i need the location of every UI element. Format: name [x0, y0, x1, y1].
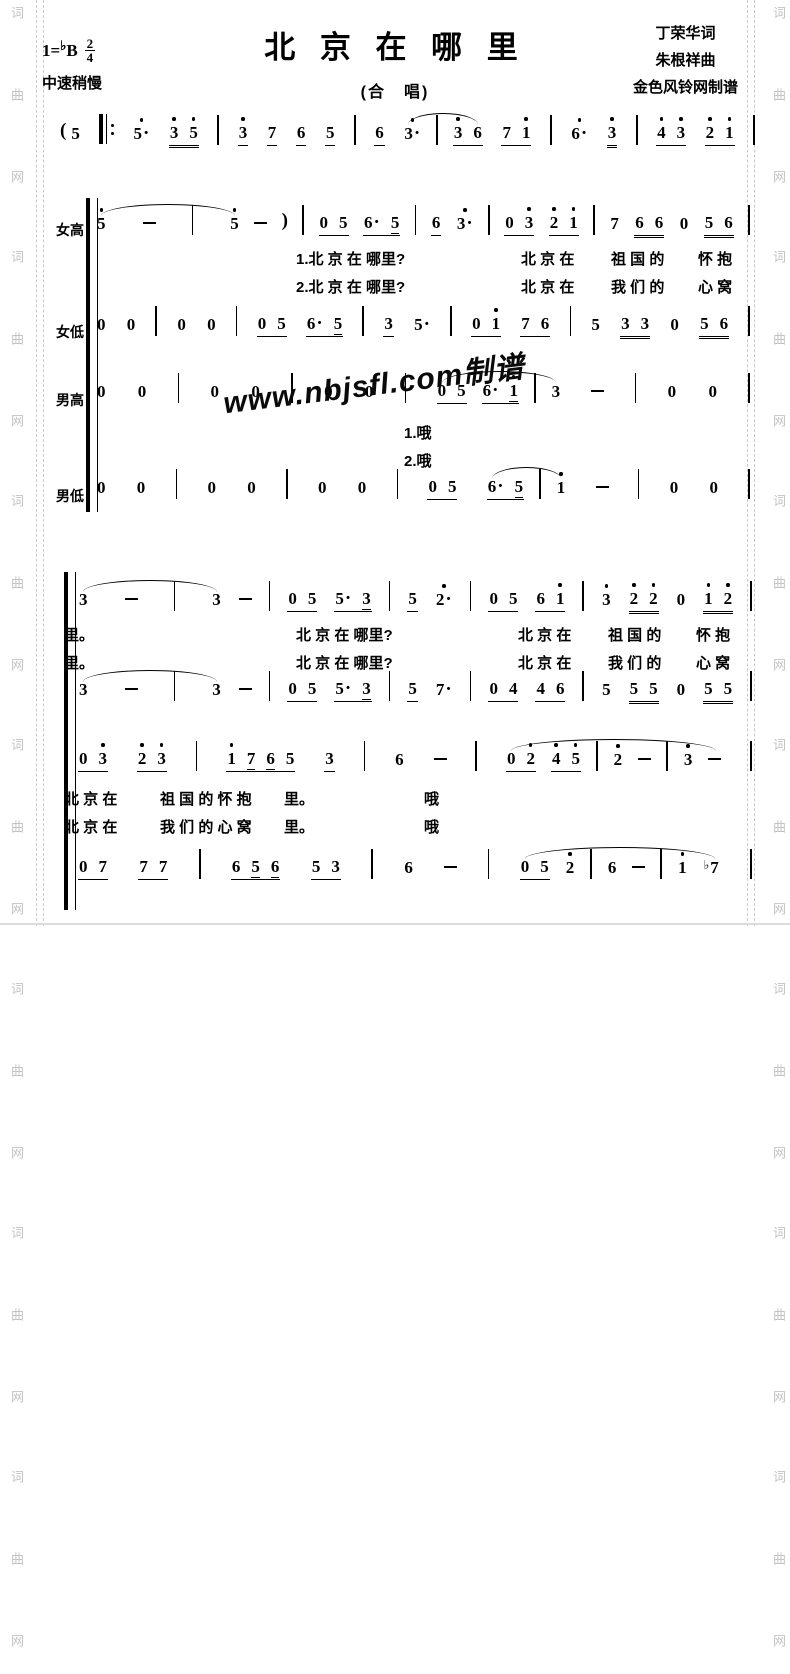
jianpu-note: 5	[539, 848, 550, 879]
jianpu-note: 5	[311, 848, 322, 879]
jianpu-note: 0	[520, 848, 531, 879]
jianpu-note: 3	[78, 581, 89, 612]
barline	[269, 671, 271, 701]
lyric-segment: 我 们 的 心 窝	[160, 816, 252, 837]
barline	[436, 115, 438, 145]
lyric-segment: 2.哦	[404, 450, 432, 471]
jianpu-note: 0	[96, 373, 107, 404]
jianpu-note: 6	[723, 204, 734, 235]
barline	[178, 373, 180, 403]
lyric-row-tenor-verse2: 2.哦	[0, 450, 790, 472]
jianpu-note: 3	[640, 305, 651, 336]
jianpu-note: 6	[270, 848, 281, 879]
barline	[217, 115, 219, 145]
token-group: (5	[60, 115, 81, 146]
beam-group: 1765	[226, 740, 295, 772]
octave-dot	[616, 744, 620, 748]
barline	[666, 741, 668, 771]
lyric-segment: 北 京 在	[518, 652, 571, 673]
barline	[590, 849, 592, 879]
lyric-segment: 北 京 在	[64, 816, 117, 837]
music-line-tenor-2: 0323176536024523	[78, 726, 752, 772]
diagonal-watermark: www.nbjsfl.com制谱	[220, 342, 526, 423]
jianpu-note: 6·	[487, 468, 505, 499]
barline	[582, 581, 584, 611]
octave-dot	[652, 583, 656, 587]
jianpu-note: 5	[285, 740, 296, 771]
jianpu-note: 0	[707, 373, 718, 404]
jianpu-note: 0	[357, 469, 368, 500]
lyric-row-verse1: 里。北 京 在 哪里?北 京 在祖 国 的怀 抱	[0, 624, 790, 646]
duration-dash	[125, 598, 138, 600]
barline	[106, 114, 108, 144]
jianpu-note: 6	[231, 848, 242, 879]
lyric-segment: 里。	[64, 652, 94, 673]
jianpu-note: 6	[403, 849, 414, 880]
octave-dot	[442, 584, 446, 588]
jianpu-note: 3	[156, 740, 167, 771]
duration-dash	[591, 390, 604, 392]
octave-dot	[411, 118, 415, 122]
repeat-sign	[99, 114, 113, 145]
barline	[450, 306, 452, 336]
jianpu-note: 0	[206, 306, 217, 337]
beam-group: 56	[699, 305, 729, 337]
lyric-segment: 里。	[64, 624, 94, 645]
barline	[750, 849, 752, 879]
jianpu-note: 3	[601, 581, 612, 612]
jianpu-note: 2	[565, 849, 576, 880]
beam-group: 3	[607, 114, 618, 146]
jianpu-note: 5·	[413, 306, 431, 337]
jianpu-note: 3	[524, 204, 535, 235]
jianpu-note: 5·	[132, 115, 150, 146]
jianpu-note: 1	[555, 580, 566, 611]
barline	[389, 581, 391, 611]
jianpu-note: 4	[508, 670, 519, 701]
augmentation-dot: ·	[373, 212, 379, 233]
barline	[174, 581, 176, 611]
lyric-segment: 我 们 的	[611, 276, 664, 297]
beam-group: 22	[629, 580, 659, 612]
jianpu-note: 1	[521, 114, 532, 145]
augmentation-dot: ·	[345, 678, 351, 699]
slur-group: 024523	[506, 740, 721, 772]
jianpu-note: 3	[211, 671, 222, 702]
beam-group: 6·5	[306, 305, 343, 337]
barline	[174, 671, 176, 701]
jianpu-note: 7	[138, 848, 149, 879]
beam-group: 5·3	[334, 580, 371, 612]
octave-dot	[160, 743, 164, 747]
beam-group: 05	[488, 580, 518, 612]
barline	[750, 581, 752, 611]
augmentation-dot: ·	[424, 314, 430, 335]
augmentation-dot: ·	[345, 588, 351, 609]
octave-dot	[140, 118, 144, 122]
jianpu-note: 2	[723, 580, 734, 611]
jianpu-note: 0	[504, 204, 515, 235]
jianpu-note: 1	[724, 114, 735, 145]
octave-dot	[172, 117, 176, 121]
jianpu-note: 0	[78, 848, 89, 879]
lyric-segment: 怀 抱	[698, 248, 732, 269]
beam-group: 21	[549, 204, 579, 236]
key-signature: 1=♭B 2 4	[42, 38, 95, 63]
parenthesis: (	[60, 120, 66, 146]
barline	[196, 741, 198, 771]
jianpu-note: 3	[453, 114, 464, 145]
octave-dot	[660, 117, 664, 121]
barline	[750, 741, 752, 771]
octave-dot	[529, 743, 533, 747]
jianpu-note: 1	[703, 580, 714, 611]
octave-dot	[233, 208, 237, 212]
meter-denominator: 4	[87, 51, 94, 63]
lyric-row-verse1: 1.北 京 在 哪里?北 京 在祖 国 的怀 抱	[0, 248, 790, 270]
octave-dot	[192, 117, 196, 121]
barline	[389, 671, 391, 701]
voice-label-alto: 女低	[56, 322, 84, 342]
jianpu-note: 2	[648, 580, 659, 611]
jianpu-note: 1	[568, 204, 579, 235]
beam-group: 77	[138, 848, 168, 880]
beam-group: 3	[383, 305, 394, 337]
lyric-row-verse2: 北 京 在我 们 的 心 窝里。哦	[0, 816, 790, 838]
octave-dot	[728, 117, 732, 121]
jianpu-note: 5	[514, 468, 525, 499]
lyric-row-verse1: 北 京 在祖 国 的 怀 抱里。哦	[0, 788, 790, 810]
jianpu-note: 3	[78, 671, 89, 702]
jianpu-note: 6	[555, 670, 566, 701]
jianpu-note: 6	[540, 305, 551, 336]
jianpu-note: 3	[324, 740, 335, 771]
jianpu-note: 6	[535, 580, 546, 611]
octave-dot	[568, 852, 572, 856]
beam-group: 05	[319, 204, 349, 236]
octave-dot	[681, 852, 685, 856]
flat-icon: ♭	[60, 38, 66, 54]
jianpu-note: 0	[246, 469, 257, 500]
barline	[534, 373, 536, 403]
jianpu-note: 3·	[403, 115, 421, 146]
beam-group: 07	[78, 848, 108, 880]
octave-dot	[610, 117, 614, 121]
lyric-segment: 北 京 在 哪里?	[296, 624, 393, 645]
music-line-soprano-2: 33055·352·0561322012	[78, 566, 752, 612]
lyric-segment: 心 窝	[698, 276, 732, 297]
music-line-intro: (55·35376563·36716·34321	[60, 100, 755, 146]
beam-group: 12	[703, 580, 733, 612]
barline	[748, 306, 750, 336]
key-prefix: 1=	[42, 41, 60, 61]
parenthesis: )	[282, 210, 288, 236]
jianpu-note: 5	[70, 115, 81, 146]
beam-group: 61	[535, 580, 565, 612]
barline	[550, 115, 552, 145]
octave-dot	[230, 743, 234, 747]
jianpu-note: 0	[506, 740, 517, 771]
barline	[362, 306, 364, 336]
time-signature: 2 4	[85, 38, 96, 63]
jianpu-note: 0	[488, 580, 499, 611]
page-bottom-edge	[0, 923, 790, 925]
jianpu-note: 5·	[334, 580, 352, 611]
barline	[748, 373, 750, 403]
lyric-row-tenor-verse1: 1.哦	[0, 422, 790, 444]
jianpu-note: 7	[98, 848, 109, 879]
jianpu-note: 5	[338, 204, 349, 235]
barline	[488, 849, 490, 879]
voice-label-tenor: 男高	[56, 390, 84, 410]
jianpu-note: 0	[679, 205, 690, 236]
lyric-segment: 北 京 在	[521, 276, 574, 297]
jianpu-note: 5	[601, 671, 612, 702]
jianpu-note: 0	[210, 373, 221, 404]
slur-group: 3·36	[403, 114, 483, 146]
lyric-segment: 北 京 在	[518, 624, 571, 645]
jianpu-note: 3	[361, 670, 372, 701]
jianpu-note: 7	[267, 114, 278, 145]
jianpu-note: 3	[238, 114, 249, 145]
jianpu-note: 1	[556, 469, 567, 500]
jianpu-note: 0	[709, 469, 720, 500]
lyric-segment: 北 京 在	[521, 248, 574, 269]
lyric-segment: 祖 国 的	[608, 624, 661, 645]
lyric-row-verse2: 里。北 京 在 哪里?北 京 在我 们 的心 窝	[0, 652, 790, 674]
beam-group: 05	[427, 468, 457, 500]
jianpu-note: 0	[136, 469, 147, 500]
jianpu-note: 0	[257, 305, 268, 336]
beam-group: 71	[501, 114, 531, 146]
jianpu-note: 3	[98, 740, 109, 771]
beam-group: 55	[703, 670, 733, 702]
jianpu-note: 5	[407, 670, 418, 701]
beam-group: 04	[488, 670, 518, 702]
lyric-segment: 祖 国 的 怀 抱	[160, 788, 252, 809]
jianpu-note: 6	[394, 741, 405, 772]
jianpu-note: 0	[126, 306, 137, 337]
octave-dot	[605, 584, 609, 588]
octave-dot	[494, 308, 498, 312]
duration-dash	[125, 688, 138, 690]
slur-group: 05261♭7	[520, 848, 720, 880]
duration-dash	[444, 866, 457, 868]
jianpu-note: 5	[704, 204, 715, 235]
jianpu-note: 5	[508, 580, 519, 611]
jianpu-note: 7	[520, 305, 531, 336]
lyric-segment: 北 京 在	[64, 788, 117, 809]
jianpu-note: 5	[229, 205, 240, 236]
lyric-segment: 里。	[284, 788, 314, 809]
barline	[750, 671, 752, 701]
duration-dash	[708, 758, 721, 760]
barline	[753, 115, 755, 145]
barline	[636, 115, 638, 145]
jianpu-note: 5	[407, 580, 418, 611]
barline	[302, 205, 304, 235]
octave-dot	[726, 583, 730, 587]
barline	[199, 849, 201, 879]
jianpu-note: 3·	[456, 205, 474, 236]
jianpu-note: 7	[158, 848, 169, 879]
jianpu-note: 0	[471, 305, 482, 336]
beam-group: 76	[520, 305, 550, 337]
jianpu-note: 6	[265, 740, 276, 771]
jianpu-note: 0	[317, 469, 328, 500]
barline	[354, 115, 356, 145]
slur-group: 33	[78, 671, 222, 702]
barline	[364, 741, 366, 771]
jianpu-note: 6	[634, 204, 645, 235]
octave-dot	[241, 117, 245, 121]
augmentation-dot: ·	[445, 589, 451, 610]
octave-dot	[101, 743, 105, 747]
jianpu-note: 3	[676, 114, 687, 145]
duration-dash	[239, 598, 252, 600]
jianpu-note: 1	[226, 740, 237, 771]
octave-dot	[456, 117, 460, 121]
duration-dash	[596, 486, 609, 488]
beam-group: 5	[407, 580, 418, 612]
beam-group: 5	[407, 670, 418, 702]
jianpu-note: 0	[206, 469, 217, 500]
octave-dot	[552, 207, 556, 211]
jianpu-note: 3	[211, 581, 222, 612]
beam-group: 36	[453, 114, 483, 146]
beam-group: 02	[506, 740, 536, 772]
jianpu-note: 0	[488, 670, 499, 701]
barline	[155, 306, 157, 336]
barline	[475, 741, 477, 771]
augmentation-dot: ·	[445, 679, 451, 700]
beam-group: 6·5	[363, 204, 400, 236]
octave-dot	[527, 207, 531, 211]
jianpu-note: 5	[447, 468, 458, 499]
jianpu-note: 5	[333, 305, 344, 336]
lyric-segment: 哦	[424, 816, 439, 837]
jianpu-note: 5	[648, 670, 659, 701]
jianpu-note: 2	[613, 741, 624, 772]
jianpu-note: 7·	[435, 671, 453, 702]
lyricist-credit: 丁荣华词	[633, 20, 738, 47]
beam-group: 5·3	[334, 670, 371, 702]
beam-group: 46	[535, 670, 565, 702]
barline	[236, 306, 238, 336]
beam-group: 45	[551, 740, 581, 772]
beam-group: 21	[705, 114, 735, 146]
jianpu-note: 7	[609, 205, 620, 236]
jianpu-note: 0	[96, 306, 107, 337]
octave-dot	[524, 117, 528, 121]
barline	[415, 205, 417, 235]
barline	[286, 469, 288, 499]
music-line-bass-2: 077765653605261♭7	[78, 834, 752, 880]
jianpu-note: 0	[427, 468, 438, 499]
barline	[99, 114, 103, 144]
jianpu-note: 3	[383, 305, 394, 336]
jianpu-note: 5	[390, 204, 401, 235]
barline	[660, 849, 662, 879]
jianpu-note: 0	[137, 373, 148, 404]
barline	[570, 306, 572, 336]
beam-group: 3	[324, 740, 335, 772]
beam-group: 33	[620, 305, 650, 337]
beam-group: 6·5	[487, 468, 524, 500]
duration-dash	[632, 866, 645, 868]
jianpu-note: 1	[491, 305, 502, 336]
jianpu-note: 2	[525, 740, 536, 771]
augmentation-dot: ·	[497, 476, 503, 497]
octave-dot	[558, 583, 562, 587]
engraver-credit: 金色风铃网制谱	[633, 74, 738, 101]
lyric-segment: 北 京 在 哪里?	[296, 652, 393, 673]
duration-dash	[239, 688, 252, 690]
jianpu-note: 1	[677, 849, 688, 880]
jianpu-note: 4	[551, 740, 562, 771]
jianpu-note: 6	[719, 305, 730, 336]
jianpu-note: 6	[374, 114, 385, 145]
jianpu-note: 5	[723, 670, 734, 701]
tempo-marking: 中速稍慢	[42, 72, 102, 93]
duration-dash	[638, 758, 651, 760]
jianpu-note: 3	[330, 848, 341, 879]
lyric-row-verse2: 2.北 京 在 哪里?北 京 在我 们 的心 窝	[0, 276, 790, 298]
jianpu-note: 5	[307, 670, 318, 701]
jianpu-note: 6	[431, 204, 442, 235]
barline	[371, 849, 373, 879]
music-line-soprano: 55)056·563·0321766056	[96, 190, 750, 236]
octave-dot	[578, 118, 582, 122]
beam-group: 05	[257, 305, 287, 337]
beam-group: 55	[629, 670, 659, 702]
duration-dash	[254, 222, 267, 224]
jianpu-note: 6	[472, 114, 483, 145]
beam-group: 03	[504, 204, 534, 236]
jianpu-note: 0	[669, 306, 680, 337]
augmentation-dot: ·	[581, 123, 587, 144]
octave-dot	[463, 208, 467, 212]
jianpu-note: 7	[246, 740, 257, 771]
barline	[192, 205, 194, 235]
slur-group: 33	[78, 581, 222, 612]
flat-icon: ♭	[704, 858, 710, 872]
beam-group: 05	[287, 580, 317, 612]
barline	[596, 741, 598, 771]
jianpu-note: 4	[535, 670, 546, 701]
jianpu-note: 0	[78, 740, 89, 771]
lyric-segment: 2.北 京 在 哪里?	[296, 276, 405, 297]
jianpu-note: ♭7	[703, 849, 720, 880]
octave-dot	[559, 472, 563, 476]
beam-group: 6	[296, 114, 307, 146]
barline	[635, 373, 637, 403]
jianpu-note: 5	[307, 580, 318, 611]
jianpu-note: 6·	[570, 115, 588, 146]
octave-dot	[679, 117, 683, 121]
barline	[397, 469, 399, 499]
jianpu-note: 0	[176, 306, 187, 337]
octave-dot	[574, 743, 578, 747]
slur-group: 6·51	[487, 468, 567, 500]
augmentation-dot: ·	[414, 123, 420, 144]
beam-group: 43	[656, 114, 686, 146]
jianpu-note: 3	[620, 305, 631, 336]
beam-group: 7	[267, 114, 278, 146]
voice-label-bass: 男低	[56, 486, 84, 506]
jianpu-note: 0	[287, 580, 298, 611]
jianpu-note: 4	[656, 114, 667, 145]
